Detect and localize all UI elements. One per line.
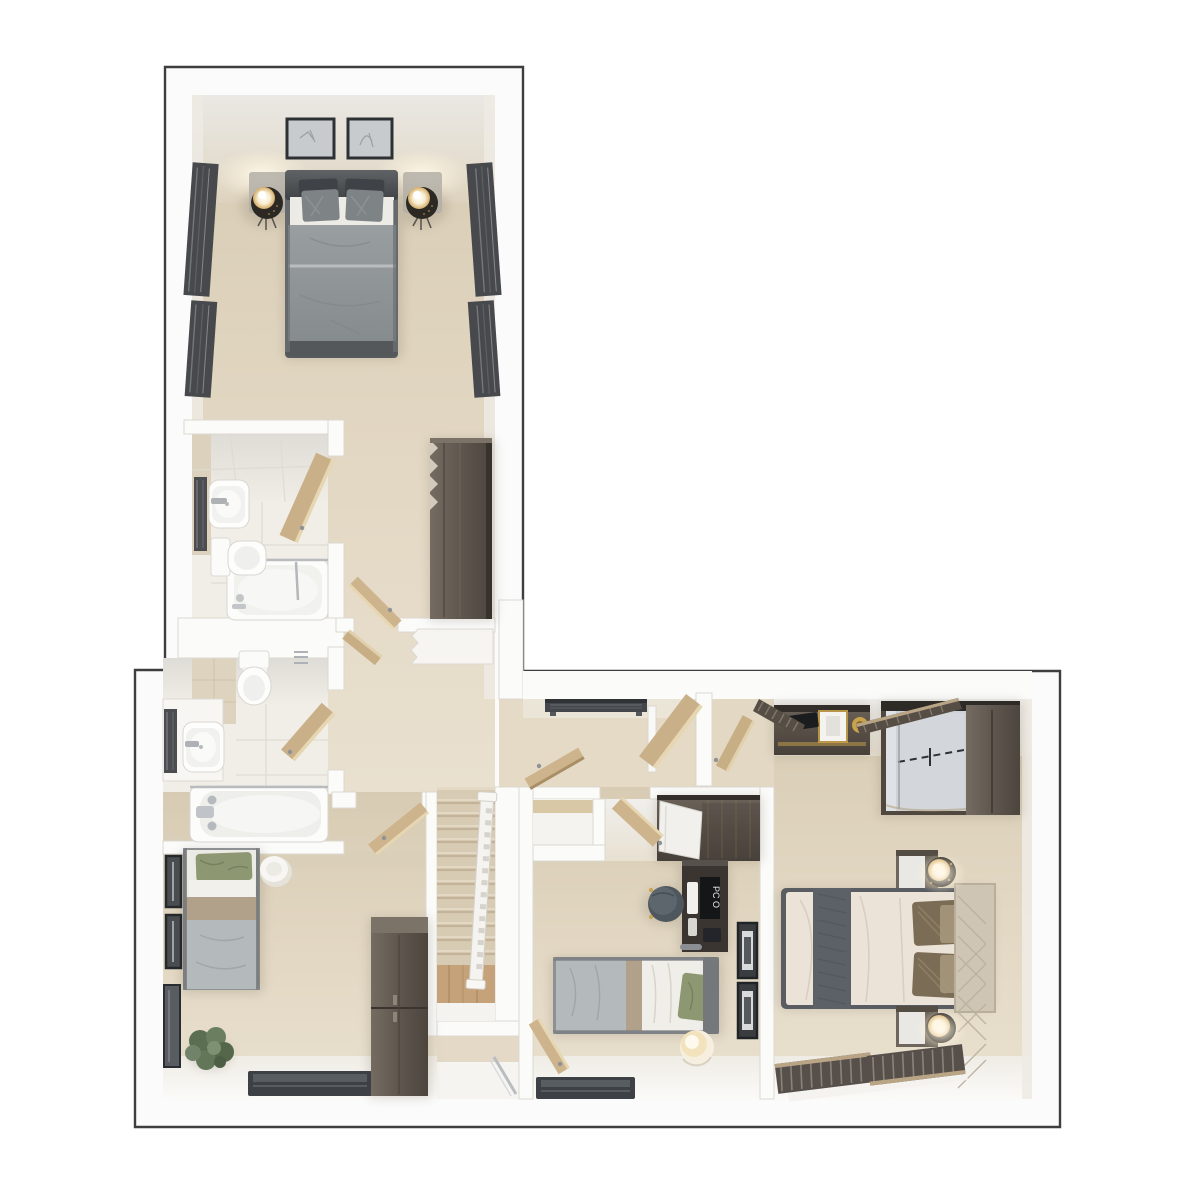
svg-text:PC O: PC O bbox=[711, 886, 721, 908]
